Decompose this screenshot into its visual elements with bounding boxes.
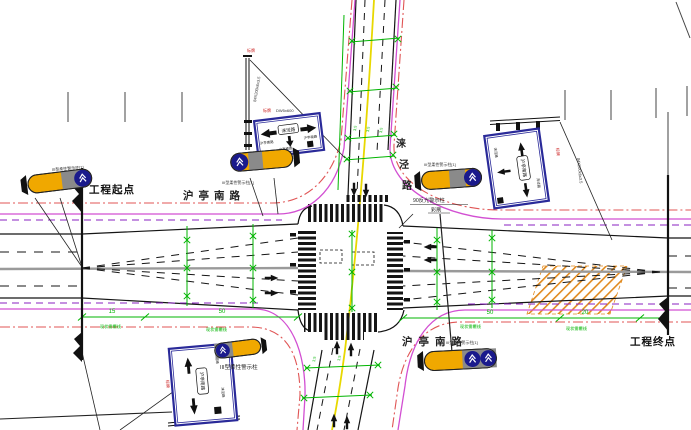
plan-sheet: 15 50 50 20 现状需覆线 现状需覆线 现状需覆线 现状需覆线 3.5 … — [0, 0, 691, 430]
marking-note-3: 现状需覆线 — [460, 323, 482, 330]
barrel-3-tag: III型柔性警示柱[1] — [424, 161, 456, 167]
barrel-2-tag: III型柔性警示柱[1] — [222, 179, 254, 185]
junction-crosswalks — [290, 195, 410, 340]
marking-note-2: 现状需覆线 — [206, 326, 228, 333]
plan-drawing: 15 50 50 20 现状需覆线 现状需覆线 现状需覆线 现状需覆线 3.5 … — [0, 0, 691, 430]
lane-width-3: 3.5 — [379, 127, 384, 133]
work-zone-hatch — [527, 266, 627, 314]
sign-a-tag: 标牌 — [247, 47, 255, 53]
warning-barrel-3 — [414, 167, 482, 192]
dim-right-1: 50 — [487, 310, 494, 316]
road-name-huting-top: 沪亭南路 — [183, 189, 245, 202]
warning-post-callout-line2: 彩刷 — [431, 206, 441, 214]
project-end-label: 工程终点 — [630, 335, 676, 348]
warning-barrel-5 — [214, 337, 268, 360]
barrel-4-tag: III型柔性警示柱[1] — [446, 339, 478, 345]
sign-a-tag2: 标牌 — [263, 107, 271, 113]
sign-pole-b — [490, 117, 560, 131]
lane-width-5: 3.5 — [337, 355, 342, 361]
marking-note-4: 现状需覆线 — [566, 325, 588, 332]
lane-width-2: 3.5 — [366, 126, 371, 132]
warning-barrel-4 — [417, 347, 497, 371]
project-end-marker — [658, 112, 668, 335]
sign-a-pole-spec: 84X200x6x3.5 — [252, 75, 261, 102]
road-name-laijing: 涞 泾 路 — [396, 137, 413, 192]
svg-text:涞: 涞 — [396, 137, 406, 150]
dim-left-2: 50 — [219, 309, 226, 315]
project-start-label: 工程起点 — [89, 183, 135, 196]
svg-text:路: 路 — [402, 179, 413, 192]
lane-width-4: 3.5 — [312, 356, 317, 362]
sign-pole-a — [243, 56, 252, 150]
svg-text:泾: 泾 — [399, 158, 409, 171]
flexible-post-label: III型柔性警示柱 — [220, 363, 258, 371]
marking-note-1: 现状需覆线 — [100, 323, 122, 330]
warning-post-callout-line1: 90反光警示柱 — [413, 196, 445, 204]
dim-right-2: 20 — [582, 310, 589, 316]
dim-left-1: 15 — [109, 309, 116, 315]
sign-c-dest-2: 涞泾路 — [220, 387, 226, 398]
survey-ticks — [68, 2, 690, 122]
sign-a-code: DW5x600 — [276, 108, 294, 113]
guide-sign-right: 沪亭南路 涞泾路 涞泾路 — [484, 128, 549, 208]
sign-b-pole-spec: 84X200x6x3.5 — [576, 158, 584, 185]
lane-width-1: 3.5 — [353, 125, 358, 131]
sign-b-tag: 标牌 — [555, 147, 562, 156]
